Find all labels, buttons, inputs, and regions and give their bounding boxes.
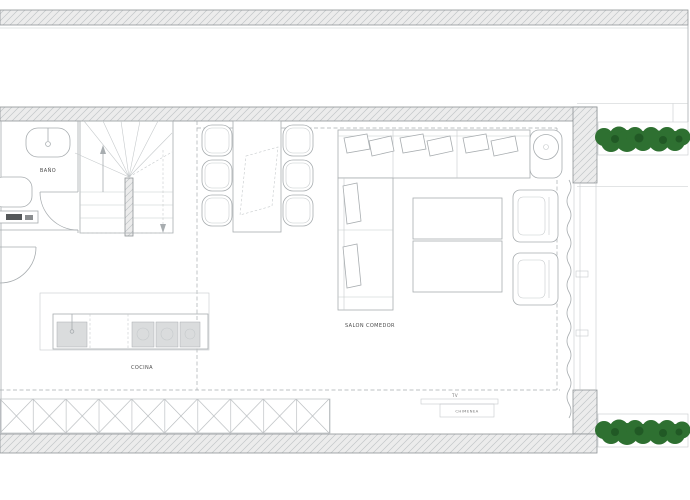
wall-right-lower [573,390,597,434]
stair-down-arrowhead [160,224,166,233]
dining-chair [283,160,313,191]
floor-plan-page: BAÑO [0,0,690,500]
dining-chair [283,195,313,226]
fireplace-label: CHIMENEA [455,409,478,414]
wall-right-upper [573,107,597,183]
dining-area [202,121,313,232]
street-wall-band [0,10,688,25]
stair-spine-wall [125,178,133,236]
bathroom: BAÑO [0,121,78,233]
tv-bench [421,399,498,404]
entry-door-swing [0,247,36,283]
staircase [75,121,173,233]
side-table-lamp [530,130,562,178]
cooktop-module [180,322,200,347]
glazing-curtain [567,180,596,418]
wall-bottom [0,434,597,453]
window-frame-lines [574,183,596,390]
hedge [595,127,690,153]
curtain-squiggle [567,180,571,418]
kitchen-label: COCINA [131,365,153,371]
stair-up-arrowhead [100,145,106,154]
dining-chair [202,195,232,226]
planter-bottom-right [595,414,690,447]
stair-winders [75,121,172,177]
cooktop-module [156,322,178,347]
window-mullion [576,330,588,336]
armchair [513,190,558,242]
island-module-dividers [90,314,128,349]
storage-row [0,399,330,433]
bathroom-label: BAÑO [40,167,56,174]
coffee-table-2 [413,241,502,292]
dining-chair [202,125,232,156]
living-room: SALON COMEDOR [338,130,562,329]
tv-unit: TV CHIMENEA [421,393,498,417]
coffee-table-1 [413,198,502,239]
dining-chair [202,160,232,191]
floor-lamp [534,135,559,160]
tv-label: TV [451,393,458,398]
x-braced-cabinets [0,399,330,433]
bathroom-fixture-dark [6,214,22,220]
dining-chair [283,125,313,156]
dining-table [233,121,281,232]
floor-plan-canvas: BAÑO [0,0,690,500]
planter-top-right [595,122,690,155]
kitchen: COCINA [40,293,209,371]
window-mullion [576,271,588,277]
hedge [595,420,690,446]
living-dining-label: SALON COMEDOR [345,323,395,329]
bathroom-fixture-small [25,215,33,220]
wall-top [0,107,597,121]
bathroom-door-swing [40,192,78,230]
armchair [513,253,558,305]
entry-door [0,247,36,283]
bathtub [0,177,32,207]
cooktop-module [132,322,154,347]
